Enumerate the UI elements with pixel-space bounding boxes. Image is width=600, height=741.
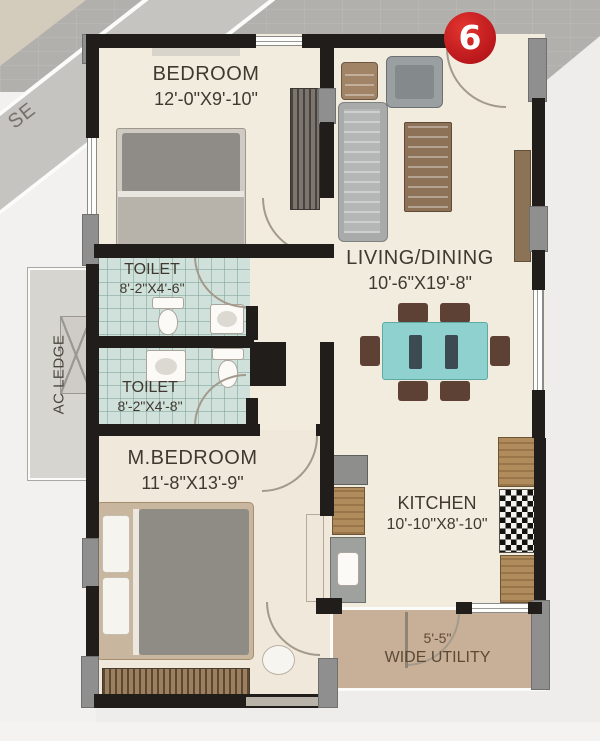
- window: [533, 290, 544, 392]
- wall-light-segment: [246, 697, 318, 706]
- toilet2-wc-tank: [212, 348, 244, 360]
- wall-segment: [246, 306, 258, 340]
- exterior-bottom-strip: [0, 722, 600, 741]
- living-armchair-brown: [341, 62, 378, 100]
- room-dims: 8'-2"X4'-6": [90, 280, 214, 298]
- toilet1-wc-tank: [152, 297, 184, 309]
- kitchen-sink-counter: [330, 537, 366, 603]
- wall-segment: [94, 424, 260, 436]
- wall-segment: [86, 34, 99, 138]
- floor-plan: SE AC LEDGE: [0, 0, 600, 741]
- column-pier: [82, 214, 99, 266]
- dining-chair: [360, 336, 380, 366]
- room-dims: 8'-2"X4'-8": [88, 398, 212, 416]
- toilet1-wc-bowl: [158, 309, 178, 335]
- room-name: TOILET: [90, 260, 214, 280]
- living-armchair-gray: [386, 56, 443, 108]
- bed-pillow-block: [122, 133, 240, 193]
- master-door-leaf: [306, 514, 324, 602]
- bedroom-bed: [116, 128, 246, 250]
- wall-segment: [534, 438, 546, 604]
- unit-number-badge: 6: [444, 12, 496, 64]
- wall-segment: [532, 250, 545, 290]
- wall-segment: [94, 244, 334, 258]
- wall-segment: [320, 34, 334, 92]
- wall-segment: [316, 598, 342, 614]
- room-label-kitchen: KITCHEN 10'-10"X8'-10": [357, 492, 517, 536]
- master-stool: [262, 645, 295, 675]
- bed-blanket: [139, 509, 249, 655]
- room-label-master-bedroom: M.BEDROOM 11'-8"X13'-9": [85, 446, 300, 495]
- column-pier: [318, 658, 338, 708]
- wall-segment: [320, 122, 334, 198]
- bed-blanket: [118, 197, 244, 249]
- wall-segment: [532, 98, 545, 210]
- dining-chair: [440, 303, 470, 323]
- kitchen-sink: [337, 552, 359, 586]
- room-label-toilet1: TOILET 8'-2"X4'-6": [90, 260, 214, 298]
- kitchen-fridge: [332, 455, 368, 485]
- column-pier: [529, 206, 548, 252]
- room-name: M.BEDROOM: [85, 446, 300, 472]
- wall-segment: [528, 602, 542, 614]
- room-label-utility: 5'-5" WIDE UTILITY: [345, 630, 530, 668]
- utility-width: 5'-5": [345, 630, 530, 648]
- bedroom-window-sill: [152, 48, 240, 56]
- dining-chair: [398, 303, 428, 323]
- wall-segment: [320, 342, 334, 434]
- living-coffee-table: [404, 122, 452, 212]
- wall-segment: [88, 34, 256, 48]
- kitchen-counter-right-bottom: [500, 555, 537, 603]
- column-pier: [82, 538, 99, 588]
- bed-pillow: [102, 515, 130, 573]
- utility-name: WIDE UTILITY: [345, 648, 530, 668]
- dining-chair: [490, 336, 510, 366]
- window: [472, 603, 528, 613]
- wall-segment: [320, 434, 334, 516]
- ac-ledge-label: AC LEDGE: [28, 268, 90, 480]
- room-label-bedroom: BEDROOM 12'-0"X9'-10": [100, 62, 312, 111]
- living-sofa: [338, 102, 388, 242]
- wall-segment: [456, 602, 472, 614]
- room-name: LIVING/DINING: [315, 246, 525, 272]
- toilet1-washbasin: [210, 304, 244, 334]
- kitchen-counter-right-top: [498, 437, 536, 487]
- dining-chair: [440, 381, 470, 401]
- ac-ledge-label-text: AC LEDGE: [51, 334, 68, 414]
- room-dims: 10'-10"X8'-10": [357, 515, 517, 535]
- room-label-toilet2: TOILET 8'-2"X4'-8": [88, 378, 212, 416]
- master-bed: [96, 502, 254, 660]
- room-name: TOILET: [88, 378, 212, 398]
- room-dims: 12'-0"X9'-10": [100, 88, 312, 111]
- room-label-living: LIVING/DINING 10'-6"X19'-8": [315, 246, 525, 295]
- bed-pillow: [102, 577, 130, 635]
- room-dims: 10'-6"X19'-8": [315, 272, 525, 295]
- room-dims: 11'-8"X13'-9": [85, 472, 300, 495]
- dining-chair: [398, 381, 428, 401]
- window: [87, 138, 97, 216]
- window: [256, 36, 302, 46]
- wall-segment: [94, 336, 254, 348]
- dining-table: [382, 322, 488, 380]
- wall-pier-block: [250, 342, 286, 386]
- column-pier: [528, 38, 547, 102]
- column-pier: [318, 88, 336, 124]
- room-name: KITCHEN: [357, 492, 517, 515]
- room-name: BEDROOM: [100, 62, 312, 88]
- wall-segment: [532, 390, 545, 438]
